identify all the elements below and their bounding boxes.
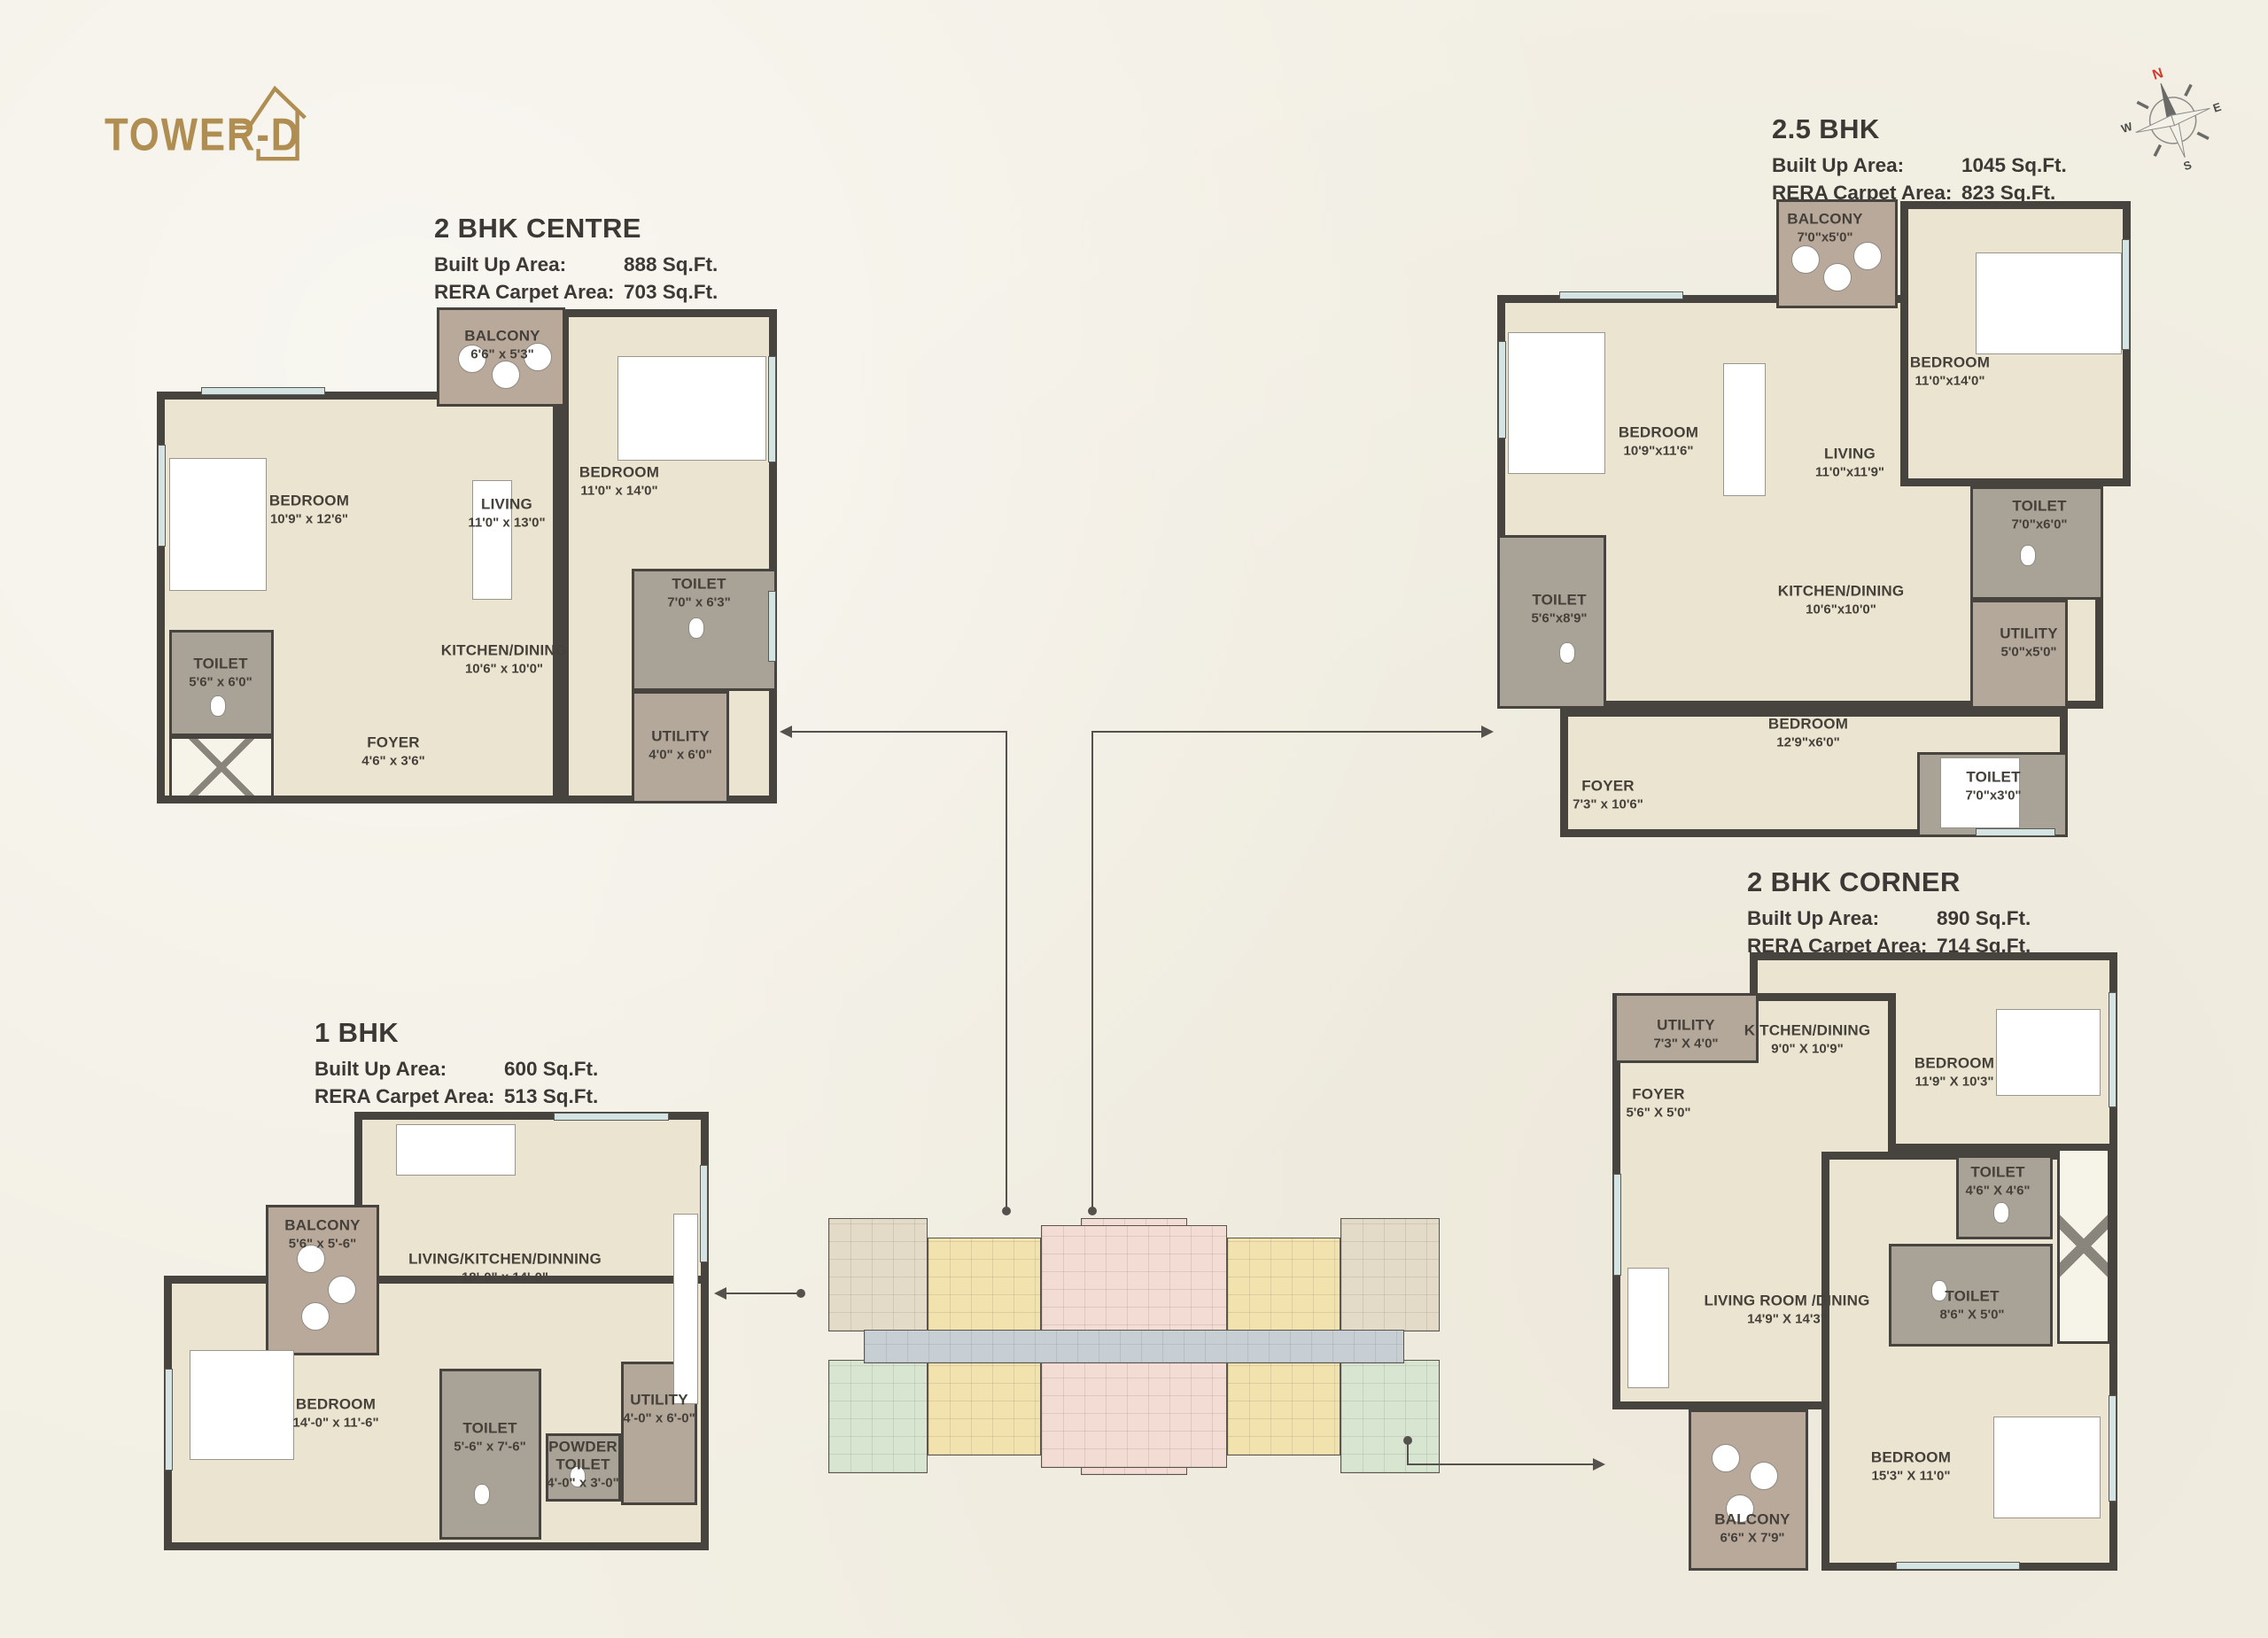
balcony-chair — [1823, 263, 1852, 291]
balcony-chair — [301, 1302, 330, 1331]
room-label: UTILITY5'0"x5'0" — [2000, 625, 2058, 660]
leader-line — [1407, 1442, 1409, 1465]
built-up-label: Built Up Area: — [1772, 151, 1961, 179]
room-label: TOILET5'6"x8'9" — [1531, 592, 1587, 626]
keyplan-unit-1bhk-bottom-left — [828, 1360, 928, 1473]
compass-east-label: E — [2211, 100, 2223, 115]
bed — [1508, 332, 1605, 474]
balcony-chair — [1712, 1444, 1740, 1472]
compass-north-label: N — [2151, 66, 2165, 83]
bed — [1996, 1009, 2101, 1096]
window — [554, 1113, 669, 1121]
room-label: TOILET8'6" X 5'0" — [1939, 1288, 2004, 1323]
window — [1498, 341, 1506, 439]
keyplan-unit-corner-top-right — [1340, 1218, 1440, 1331]
room-label: BALCONY7'0"x5'0" — [1787, 211, 1862, 245]
room-label: UTILITY4'-0" x 6'-0" — [623, 1392, 695, 1426]
built-up-label: Built Up Area: — [434, 251, 624, 278]
built-up-value: 1045 Sq.Ft. — [1961, 151, 2067, 179]
room-label: LIVING ROOM /DINING14'9" X 14'3" — [1704, 1293, 1869, 1327]
toilet-fixture — [688, 617, 704, 639]
sofa — [396, 1124, 516, 1176]
room-label: LIVING/KITCHEN/DINNING18'-0" x 14'-0" — [408, 1251, 602, 1285]
unit-name: 2 BHK CENTRE — [434, 213, 718, 245]
room-label: BEDROOM10'9"x11'6" — [1619, 424, 1698, 459]
window — [158, 445, 166, 547]
balcony-chair — [1750, 1462, 1778, 1490]
built-up-value: 890 Sq.Ft. — [1937, 904, 2031, 932]
window — [1559, 291, 1683, 299]
room-label: BALCONY6'6" x 5'3" — [464, 328, 540, 362]
room-label: TOILET5'-6" x 7'-6" — [454, 1420, 525, 1455]
room-label: TOILET7'0"x6'0" — [2011, 498, 2067, 532]
room-label: UTILITY4'0" x 6'0" — [649, 728, 711, 763]
toilet-fixture — [2020, 545, 2036, 566]
bed — [1993, 1417, 2101, 1518]
room-label: LIVING11'0" x 13'0" — [468, 496, 545, 531]
unit-name: 2 BHK CORNER — [1747, 866, 2031, 898]
toilet-zone — [439, 1369, 541, 1540]
house-logo-icon — [223, 69, 321, 167]
window — [1976, 828, 2055, 836]
keyplan-corridor — [864, 1330, 1404, 1363]
bed — [617, 356, 766, 461]
window — [165, 1369, 173, 1471]
compass-icon: N E S W — [2105, 51, 2239, 185]
window — [2122, 239, 2130, 350]
room-label: KITCHEN/DINING10'6"x10'0" — [1778, 583, 1905, 617]
keyplan-unit-corner-top-left — [828, 1218, 928, 1331]
room-label: KITCHEN/DINING9'0" X 10'9" — [1744, 1022, 1871, 1057]
unit-title-2bhk-centre: 2 BHK CENTRE Built Up Area:888 Sq.Ft. RE… — [434, 213, 718, 306]
window — [2109, 1395, 2117, 1502]
toilet-fixture — [474, 1484, 490, 1505]
room-label: FOYER5'6" X 5'0" — [1626, 1086, 1690, 1121]
plan-2bhk-centre: BALCONY6'6" x 5'3" BEDROOM10'9" x 12'6" … — [157, 307, 777, 803]
room-label: TOILET5'6" x 6'0" — [189, 656, 252, 690]
rera-value: 703 Sq.Ft. — [624, 278, 718, 306]
unit-title-2bhk-corner: 2 BHK CORNER Built Up Area:890 Sq.Ft. RE… — [1747, 866, 2031, 959]
balcony-chair — [328, 1276, 356, 1304]
built-up-value: 888 Sq.Ft. — [624, 251, 718, 278]
kitchen-counter — [673, 1214, 698, 1404]
window — [1613, 1174, 1621, 1276]
plan-1bhk: BALCONY5'6" x 5'-6" LIVING/KITCHEN/DINNI… — [164, 1112, 709, 1550]
leader-line — [1408, 1463, 1593, 1465]
room-label: TOILET7'0"x3'0" — [1965, 769, 2021, 803]
room-label: TOILET7'0" x 6'3" — [667, 576, 730, 610]
toilet-fixture — [1993, 1202, 2009, 1223]
floorplan-poster: TOWER-D N E S W 2 BHK CENTRE Built Up Ar… — [0, 0, 2268, 1638]
room-label: BEDROOM12'9"x6'0" — [1768, 716, 1848, 750]
window — [768, 356, 776, 462]
toilet-fixture — [210, 695, 226, 717]
rera-label: RERA Carpet Area: — [434, 278, 624, 306]
room-label: BEDROOM14'-0" x 11'-6" — [292, 1396, 378, 1431]
built-up-value: 600 Sq.Ft. — [504, 1055, 598, 1083]
leader-dot — [796, 1289, 805, 1298]
balcony-zone — [1689, 1409, 1808, 1571]
room-label: POWDER TOILET4'-0" x 3'-0" — [539, 1439, 627, 1491]
built-up-label: Built Up Area: — [315, 1055, 504, 1083]
leader-arrow-2bhk-corner — [1593, 1458, 1605, 1471]
room-label: TOILET4'6" X 4'6" — [1965, 1164, 2030, 1199]
room-label: BEDROOM11'9" X 10'3" — [1915, 1055, 1994, 1090]
room-label: BEDROOM11'0" x 14'0" — [579, 464, 659, 499]
unit-name: 1 BHK — [315, 1017, 598, 1049]
leader-arrow-2bhk-centre — [780, 726, 792, 738]
leader-line — [792, 731, 1006, 733]
unit-title-2-5bhk: 2.5 BHK Built Up Area:1045 Sq.Ft. RERA C… — [1772, 113, 2067, 206]
leader-arrow-1bhk — [714, 1287, 726, 1300]
unit-title-1bhk: 1 BHK Built Up Area:600 Sq.Ft. RERA Carp… — [315, 1017, 598, 1110]
room-label: BALCONY6'6" X 7'9" — [1714, 1511, 1790, 1546]
window — [1896, 1562, 2020, 1570]
keyplan-unit-1bhk-bottom-right — [1340, 1360, 1440, 1473]
room-label: FOYER4'6" x 3'6" — [361, 734, 424, 769]
window — [700, 1165, 708, 1262]
room-label: LIVING11'0"x11'9" — [1815, 446, 1884, 480]
room-label: BEDROOM15'3" X 11'0" — [1871, 1449, 1951, 1484]
shaft — [169, 736, 274, 798]
rera-value: 513 Sq.Ft. — [504, 1083, 598, 1110]
plan-2bhk-corner: UTILITY7'3" X 4'0" KITCHEN/DINING9'0" X … — [1612, 952, 2122, 1572]
window — [768, 591, 776, 662]
balcony-chair — [1853, 242, 1882, 270]
compass-west-label: W — [2119, 120, 2134, 136]
balcony-chair — [492, 361, 520, 389]
window — [2109, 992, 2117, 1107]
sofa — [1627, 1268, 1669, 1388]
room-label: UTILITY7'3" X 4'0" — [1653, 1017, 1718, 1052]
window — [201, 387, 325, 395]
bed — [1976, 252, 2122, 354]
room-label: KITCHEN/DINING10'6" x 10'0" — [441, 642, 568, 677]
room-label: BEDROOM10'9" x 12'6" — [269, 493, 349, 527]
leader-dot — [1002, 1207, 1011, 1215]
leader-arrow-2-5bhk — [1481, 726, 1494, 738]
room-label: FOYER7'3" x 10'6" — [1573, 778, 1643, 812]
leader-line — [1091, 731, 1093, 1209]
shaft — [2057, 1148, 2110, 1344]
leader-line — [1092, 731, 1481, 733]
sofa — [1723, 363, 1766, 496]
bed — [190, 1350, 294, 1460]
toilet-fixture — [1559, 642, 1575, 664]
leader-line — [726, 1293, 801, 1294]
compass-south-label: S — [2182, 158, 2194, 173]
room-label: BALCONY5'6" x 5'-6" — [284, 1217, 360, 1252]
rera-label: RERA Carpet Area: — [315, 1083, 504, 1110]
room-label: BEDROOM11'0"x14'0" — [1910, 354, 1990, 389]
plan-2-5bhk: BALCONY7'0"x5'0" BEDROOM10'9"x11'6" BEDR… — [1497, 199, 2131, 837]
bed — [169, 458, 267, 591]
keyplan — [828, 1218, 1440, 1475]
leader-line — [1006, 731, 1007, 1209]
built-up-label: Built Up Area: — [1747, 904, 1937, 932]
balcony-chair — [1791, 245, 1820, 274]
unit-name: 2.5 BHK — [1772, 113, 2067, 145]
